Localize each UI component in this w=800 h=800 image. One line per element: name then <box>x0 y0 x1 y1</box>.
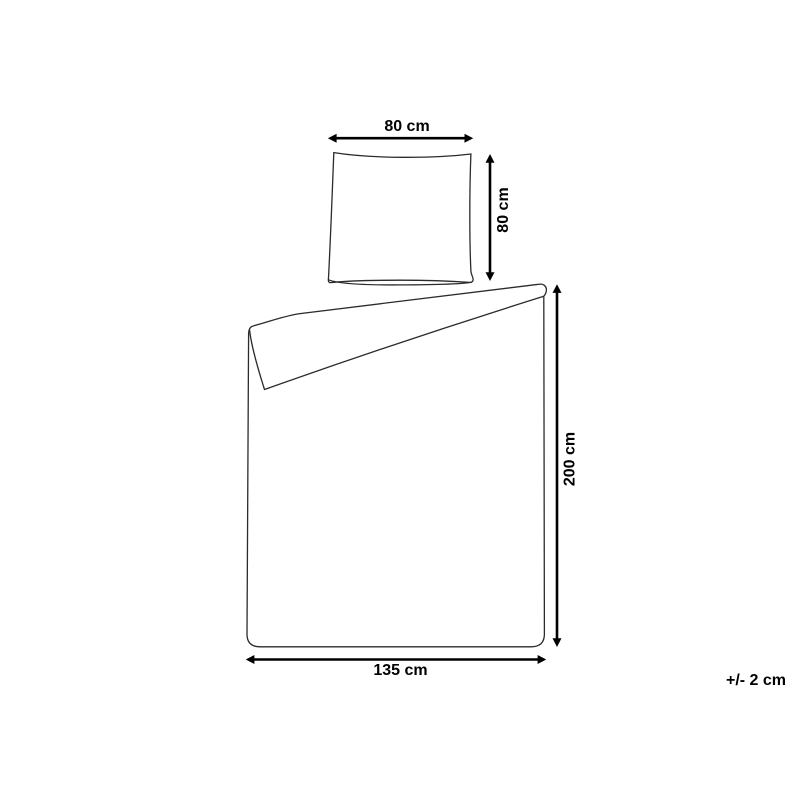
svg-text:135 cm: 135 cm <box>373 662 427 679</box>
svg-text:80 cm: 80 cm <box>384 118 429 135</box>
svg-text:80 cm: 80 cm <box>495 187 512 232</box>
svg-text:200 cm: 200 cm <box>562 432 579 486</box>
svg-text:+/- 2 cm: +/- 2 cm <box>726 672 786 689</box>
